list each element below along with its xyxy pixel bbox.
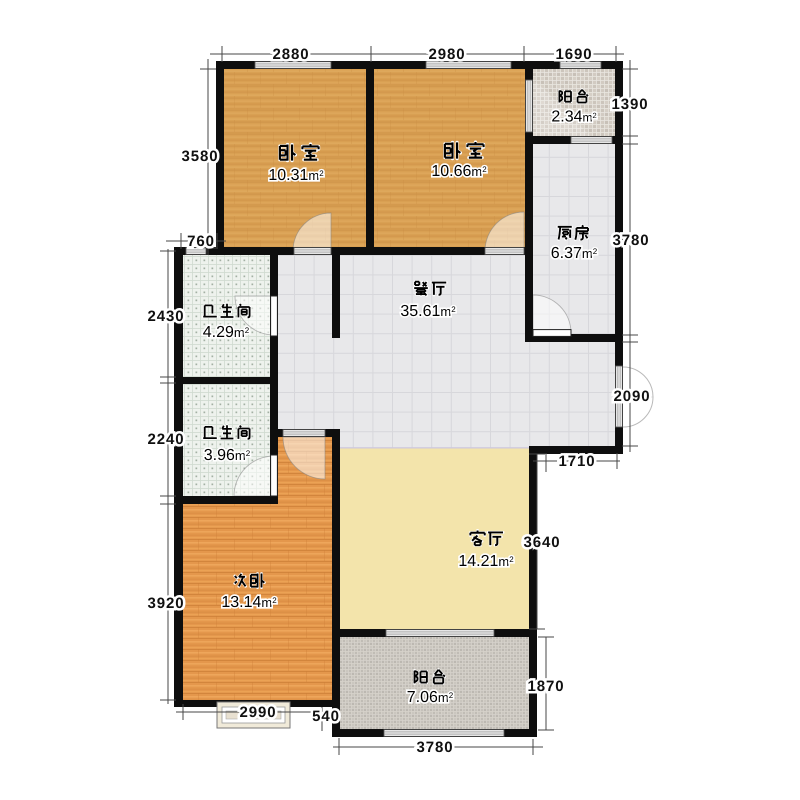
svg-text:1870: 1870	[528, 678, 565, 695]
svg-text:1690: 1690	[556, 46, 593, 63]
svg-text:2990: 2990	[240, 704, 277, 721]
svg-text:3640: 3640	[524, 534, 561, 551]
svg-text:2880: 2880	[273, 46, 310, 63]
svg-text:3780: 3780	[417, 739, 454, 756]
svg-text:6.37m2: 6.37m2	[551, 245, 598, 262]
svg-text:2.34m2: 2.34m2	[551, 109, 596, 126]
svg-text:7.06m2: 7.06m2	[407, 689, 454, 706]
svg-text:760: 760	[187, 233, 215, 250]
svg-text:10.66m2: 10.66m2	[431, 163, 487, 180]
svg-text:1710: 1710	[559, 453, 596, 470]
svg-text:3580: 3580	[182, 148, 219, 165]
svg-text:35.61m2: 35.61m2	[400, 303, 456, 320]
svg-text:1390: 1390	[612, 96, 649, 113]
svg-text:13.14m2: 13.14m2	[221, 594, 277, 611]
svg-text:3920: 3920	[148, 595, 185, 612]
svg-text:14.21m2: 14.21m2	[458, 553, 514, 570]
svg-text:2240: 2240	[148, 431, 185, 448]
svg-text:2430: 2430	[148, 308, 185, 325]
svg-text:2980: 2980	[429, 46, 466, 63]
svg-text:540: 540	[312, 708, 340, 725]
svg-text:4.29m2: 4.29m2	[203, 324, 250, 341]
svg-text:3.96m2: 3.96m2	[204, 447, 251, 464]
svg-text:3780: 3780	[613, 232, 650, 249]
svg-text:2090: 2090	[614, 388, 651, 405]
svg-text:10.31m2: 10.31m2	[268, 167, 324, 184]
